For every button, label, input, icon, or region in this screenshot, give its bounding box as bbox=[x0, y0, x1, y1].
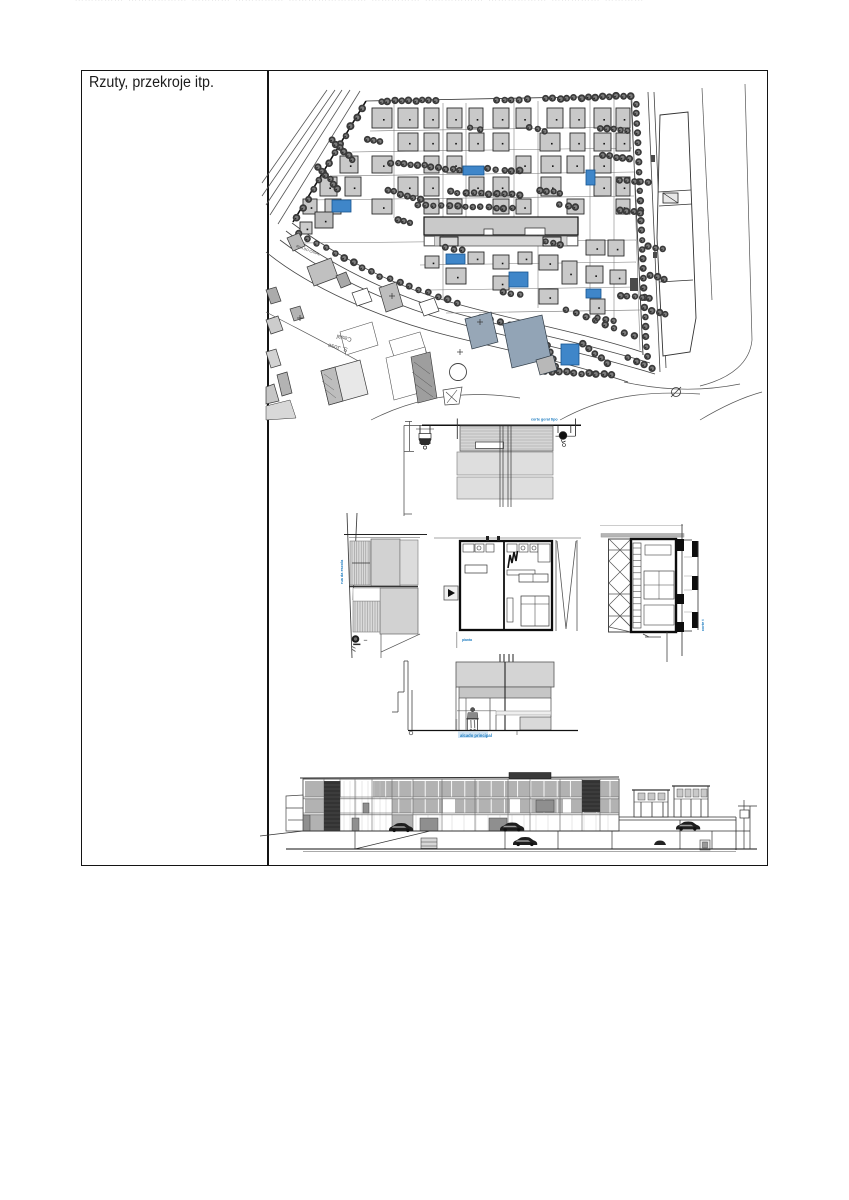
svg-text:corte geral tipo: corte geral tipo bbox=[531, 418, 558, 422]
svg-text:planta: planta bbox=[462, 638, 472, 642]
svg-text:rua da escola: rua da escola bbox=[340, 559, 344, 584]
svg-text:corte t: corte t bbox=[701, 619, 705, 631]
svg-text:alcado principal: alcado principal bbox=[460, 733, 492, 738]
